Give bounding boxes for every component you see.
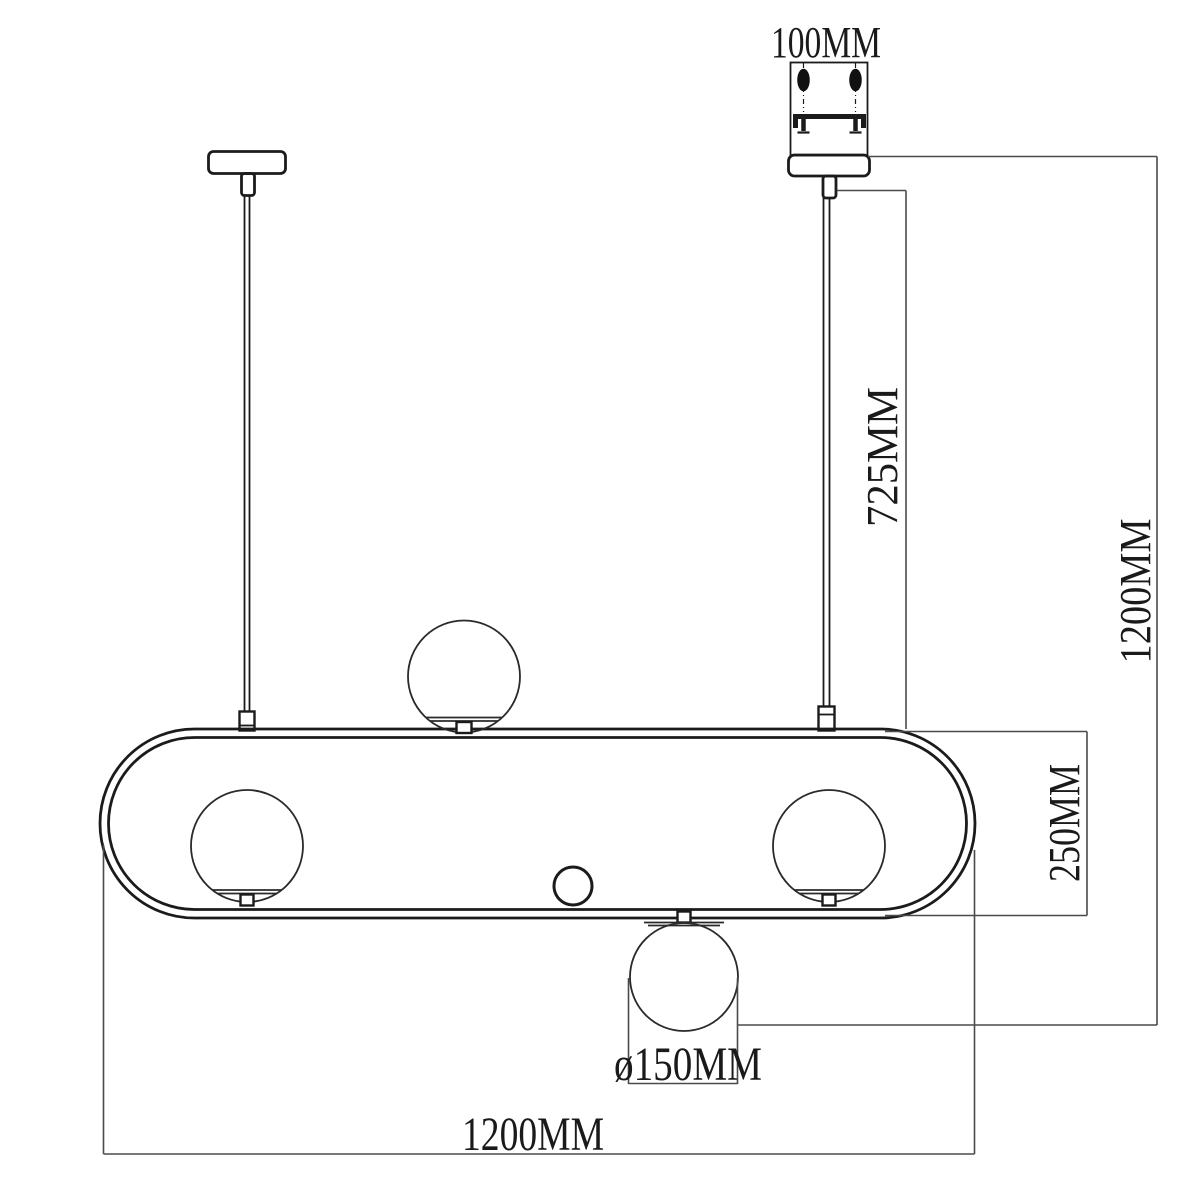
frame-inner-outline xyxy=(109,738,967,910)
center-sphere-outline xyxy=(554,867,592,905)
left-canopy-outline xyxy=(209,152,286,174)
overall-width-label: 1200MM xyxy=(462,1108,604,1161)
left-globe xyxy=(191,790,303,906)
right-globe xyxy=(773,790,885,906)
right-globe-outline xyxy=(773,790,885,902)
right-globe-mount xyxy=(823,895,836,906)
center-small-sphere xyxy=(554,867,592,905)
bottom-globe-outline xyxy=(630,923,738,1031)
frame-height-label: 250MM xyxy=(1040,764,1089,882)
top-globe xyxy=(408,621,520,734)
top-globe-mount xyxy=(457,722,472,733)
left-globe-mount xyxy=(241,895,254,906)
right-screw-icon xyxy=(850,70,861,91)
bottom-globe xyxy=(630,912,738,1032)
right-canopy-stem xyxy=(823,176,836,198)
overall-drop-label: 1200MM xyxy=(1111,519,1160,664)
left-suspension xyxy=(209,152,286,731)
left-canopy-stem xyxy=(242,174,255,196)
top-globe-outline xyxy=(408,621,520,733)
globe-diameter-label: ø150MM xyxy=(614,1038,762,1091)
right-rod-ferrule xyxy=(819,707,835,731)
canopy-width-label: 100MM xyxy=(771,18,881,67)
right-canopy-outline xyxy=(789,155,870,176)
left-screw-icon xyxy=(798,70,809,91)
dimension-lines xyxy=(104,157,1158,1155)
bottom-globe-mount xyxy=(678,912,691,923)
pendant-light-dimension-drawing: 100MM 725MM 1200MM 250MM ø150MM 1200MM xyxy=(0,0,1200,1200)
dimension-labels: 100MM 725MM 1200MM 250MM ø150MM 1200MM xyxy=(462,18,1160,1161)
drawing-canvas: 100MM 725MM 1200MM 250MM ø150MM 1200MM xyxy=(0,0,1200,1200)
rod-drop-label: 725MM xyxy=(858,387,907,527)
left-globe-outline xyxy=(191,790,303,902)
